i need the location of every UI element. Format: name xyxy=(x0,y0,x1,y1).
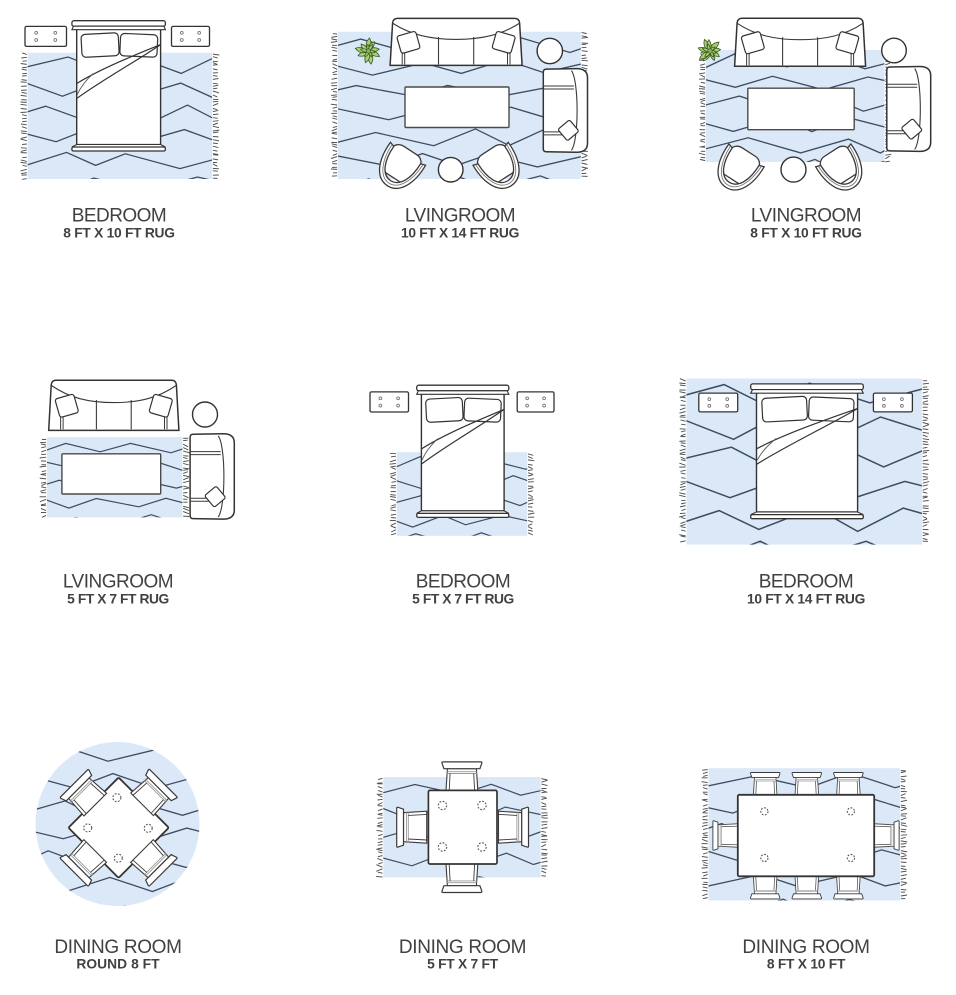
svg-text:10 FT X 14 FT RUG: 10 FT X 14 FT RUG xyxy=(747,591,865,606)
svg-text:5 FT X 7 FT RUG: 5 FT X 7 FT RUG xyxy=(67,591,169,606)
svg-text:BEDROOM: BEDROOM xyxy=(416,571,510,592)
svg-text:LVINGROOM: LVINGROOM xyxy=(751,205,861,226)
svg-text:8 FT X 10 FT RUG: 8 FT X 10 FT RUG xyxy=(63,226,174,241)
svg-text:BEDROOM: BEDROOM xyxy=(759,571,853,592)
svg-text:DINING ROOM: DINING ROOM xyxy=(54,937,181,958)
svg-text:BEDROOM: BEDROOM xyxy=(72,205,166,226)
svg-text:8 FT X 10 FT: 8 FT X 10 FT xyxy=(767,956,846,971)
svg-text:8 FT X 10 FT RUG: 8 FT X 10 FT RUG xyxy=(750,226,861,241)
svg-text:DINING ROOM: DINING ROOM xyxy=(742,937,869,958)
svg-text:10 FT X 14 FT RUG: 10 FT X 14 FT RUG xyxy=(401,226,519,241)
svg-text:5 FT X 7 FT: 5 FT X 7 FT xyxy=(427,956,499,971)
svg-text:LVINGROOM: LVINGROOM xyxy=(63,571,173,592)
svg-text:LVINGROOM: LVINGROOM xyxy=(405,205,515,226)
svg-text:ROUND 8 FT: ROUND 8 FT xyxy=(76,956,160,971)
svg-text:DINING ROOM: DINING ROOM xyxy=(399,937,526,958)
svg-text:5 FT X 7 FT RUG: 5 FT X 7 FT RUG xyxy=(412,591,514,606)
